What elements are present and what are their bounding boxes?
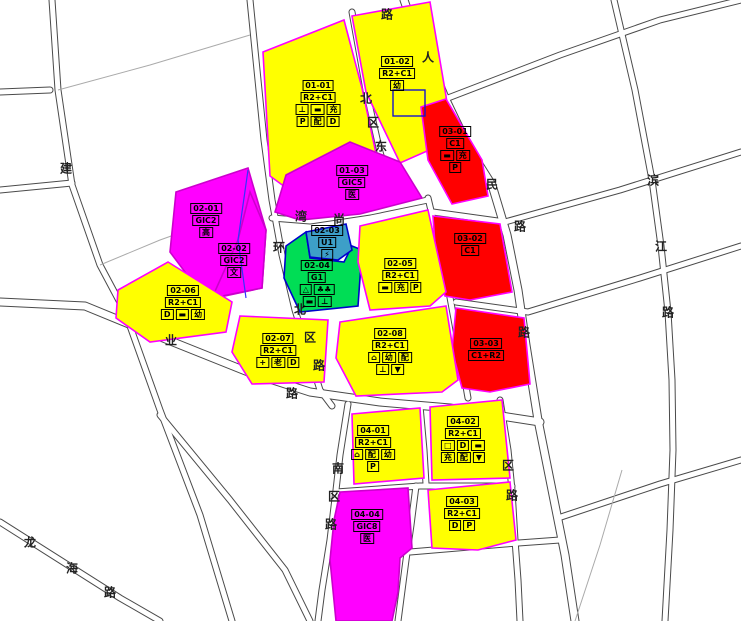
parcel-02-08	[336, 306, 458, 396]
parcel-layer	[116, 2, 530, 621]
parcel-04-02	[430, 400, 510, 480]
planning-map-canvas: 01-01R2+C1⊥▬充P配D01-02R2+C1幼01-03GIC5医03-…	[0, 0, 741, 621]
parcel-04-01	[352, 408, 424, 484]
parcel-02-07	[232, 316, 328, 384]
parcel-03-01	[421, 99, 488, 204]
minor-lot-line	[58, 35, 250, 90]
minor-lot-line	[575, 470, 622, 621]
parcel-03-03	[452, 308, 530, 392]
parcel-04-03	[428, 482, 516, 550]
map-svg	[0, 0, 741, 621]
parcel-02-03	[306, 224, 352, 260]
